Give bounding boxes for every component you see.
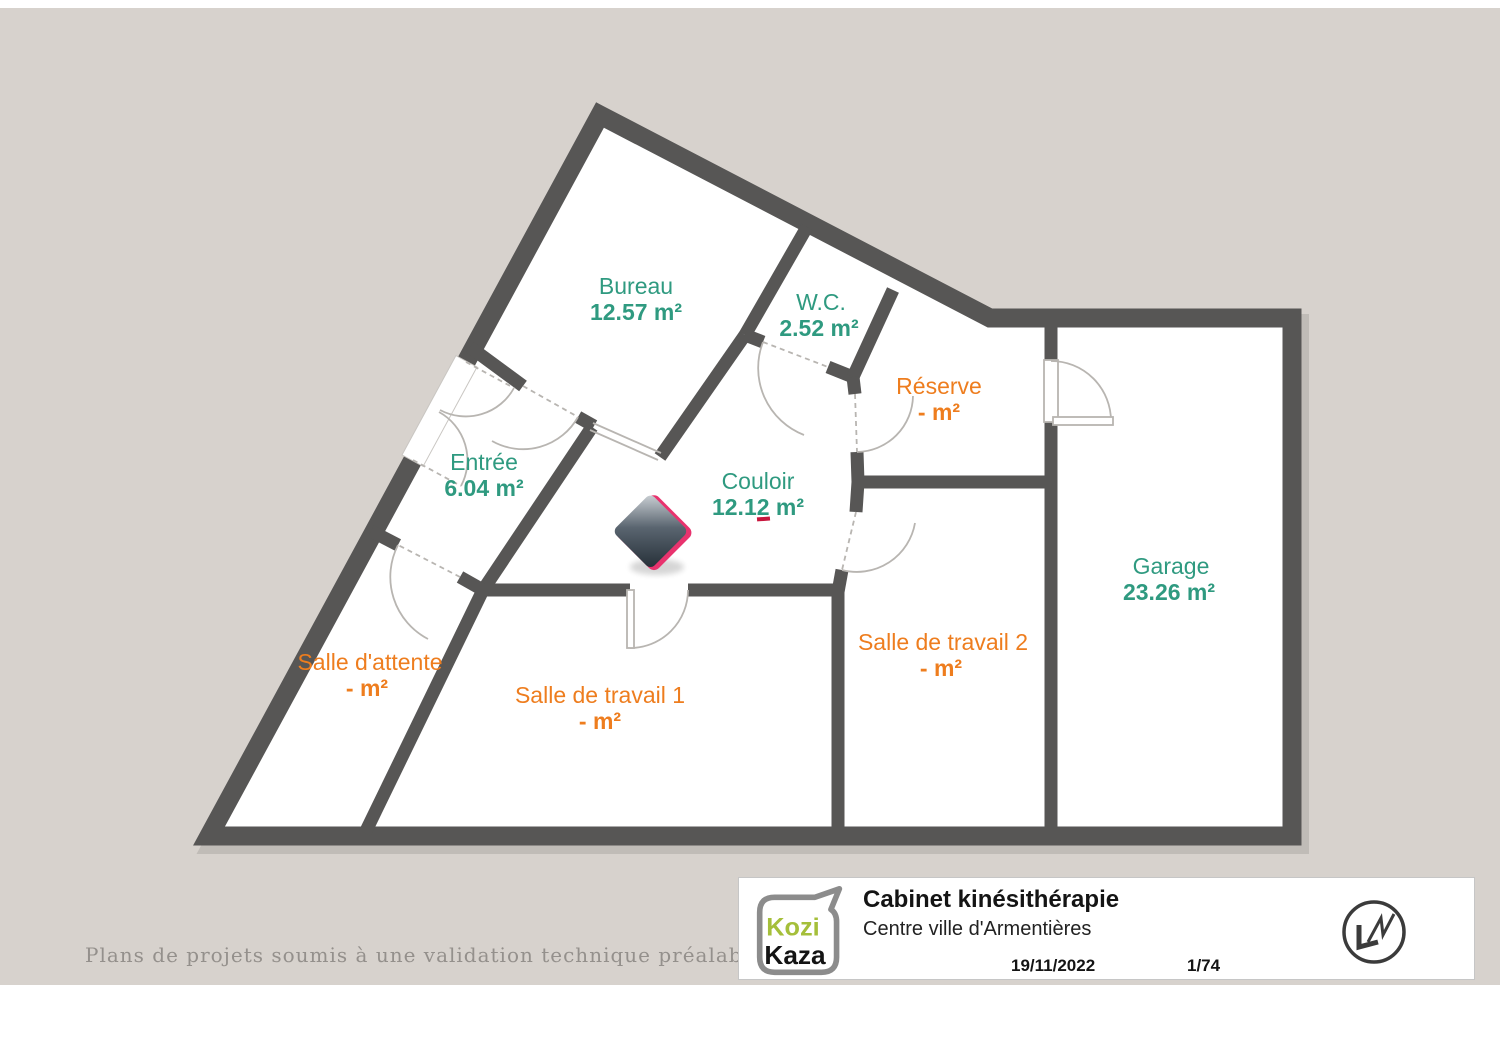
logo-word-kaza: Kaza (764, 940, 826, 970)
room-area-salle1: - m² (579, 708, 622, 734)
wall-reserve-couloir (856, 452, 858, 512)
wall-wc-bottom-stub-left (745, 335, 763, 342)
room-label-garage: Garage (1133, 553, 1210, 579)
room-label-attente: Salle d'attente (297, 649, 442, 675)
plan-subtitle: Centre ville d'Armentières (863, 918, 1091, 941)
room-area-garage: 23.26 m² (1123, 579, 1215, 605)
room-label-couloir: Couloir (722, 468, 795, 494)
room-label-entree: Entrée (450, 449, 518, 475)
title-block: Kozi Kaza Cabinet kinésithérapie Centre … (738, 877, 1475, 980)
room-area-salle2: - m² (920, 655, 963, 681)
room-label-salle2: Salle de travail 2 (858, 629, 1028, 655)
room-area-wc: 2.52 m² (779, 315, 859, 341)
plan-date: 19/11/2022 (1011, 956, 1095, 976)
wall-reserve-stub-top (853, 377, 855, 394)
room-area-entree: 6.04 m² (444, 475, 524, 501)
kozikaza-logo: Kozi Kaza (755, 886, 845, 976)
room-label-reserve: Réserve (896, 373, 982, 399)
room-area-bureau: 12.57 m² (590, 299, 682, 325)
north-compass-icon (1339, 897, 1409, 967)
disclaimer-text: Plans de projets soumis à une validation… (85, 943, 763, 967)
logo-word-kozi: Kozi (766, 914, 819, 942)
room-area-couloir: 12.12 m² (712, 494, 804, 520)
door-leaf (1053, 417, 1113, 425)
room-area-attente: - m² (346, 675, 389, 701)
room-label-salle1: Salle de travail 1 (515, 682, 685, 708)
door-leaf (627, 590, 634, 648)
door-panel (1044, 360, 1058, 422)
room-area-reserve: - m² (918, 399, 961, 425)
plan-title: Cabinet kinésithérapie (863, 886, 1119, 914)
page: Bureau 12.57 m² W.C. 2.52 m² Réserve - m… (0, 0, 1500, 1060)
room-label-wc: W.C. (796, 289, 846, 315)
room-label-bureau: Bureau (599, 273, 673, 299)
wall-salle2-stub (838, 570, 842, 592)
plan-page-number: 1/74 (1187, 956, 1220, 976)
